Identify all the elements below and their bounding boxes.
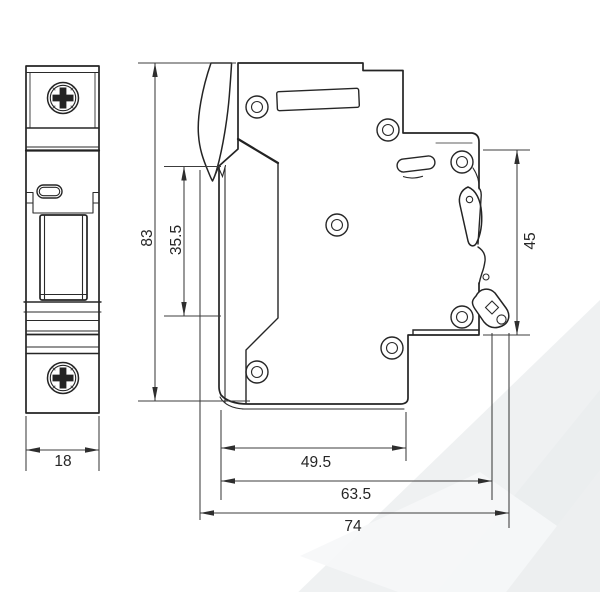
- lever-pocket-edge: [238, 139, 278, 163]
- toggle-lever-front: [40, 215, 87, 300]
- technical-drawing-canvas: 18 83 35.5 45 49.5 63.5 74: [0, 0, 600, 600]
- dim-35-5-label: 35.5: [168, 225, 185, 255]
- lever-bezel-ribs: [24, 302, 101, 354]
- oval-slot: [396, 155, 436, 180]
- rivet-icon: [326, 214, 348, 236]
- side-body-outline: [219, 63, 479, 404]
- label-plate: [277, 88, 360, 111]
- dim-63-5-label: 63.5: [341, 486, 371, 503]
- dimension-49-5: 49.5: [221, 410, 406, 500]
- rivet-icon: [246, 96, 268, 118]
- dim-74-label: 74: [344, 518, 362, 535]
- rivet-icon: [451, 151, 473, 173]
- din-latch-foot: [472, 289, 508, 327]
- rivet-icon: [246, 361, 268, 383]
- dim-45-label: 45: [522, 232, 539, 249]
- case-seam: [246, 163, 278, 403]
- rivet-icon: [381, 337, 403, 359]
- din-rail-latch: [459, 168, 508, 328]
- indicator-window: [37, 185, 62, 198]
- toggle-lever-side: [198, 63, 231, 181]
- terminal-screw-bottom-icon: [48, 363, 79, 394]
- rivet-icon: [451, 306, 473, 328]
- rivet-icon: [377, 119, 399, 141]
- dim-18-label: 18: [54, 453, 71, 470]
- front-body-outline: [26, 66, 99, 413]
- dimension-35-5: 35.5: [164, 167, 221, 317]
- dim-49-5-label: 49.5: [301, 454, 331, 471]
- dimension-83: 83: [138, 63, 250, 401]
- dim-83-label: 83: [139, 229, 156, 246]
- side-view: [198, 63, 509, 409]
- terminal-screw-top-icon: [48, 83, 79, 114]
- rivets: [246, 96, 473, 383]
- dimension-18: 18: [26, 416, 99, 471]
- front-view: [24, 66, 101, 413]
